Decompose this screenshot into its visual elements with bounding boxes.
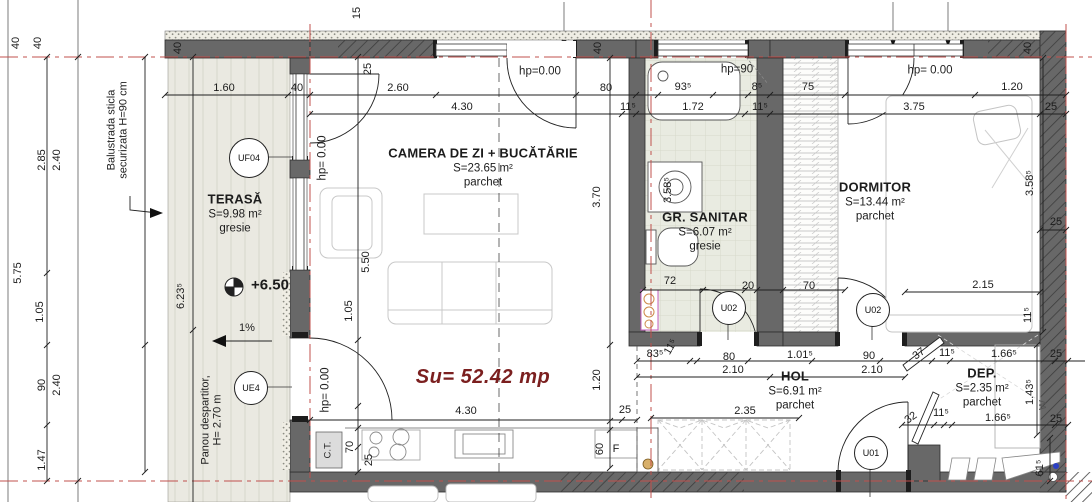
floor-plan-drawing xyxy=(0,0,1092,502)
dep-door-leaves xyxy=(903,337,944,444)
door-opening-top xyxy=(507,41,576,57)
dining-table xyxy=(424,194,518,234)
window-uf04 xyxy=(293,74,307,160)
window-terrace-lower xyxy=(293,178,307,270)
bedroom-furniture xyxy=(886,96,1032,332)
window-arc-terrace xyxy=(310,74,379,143)
wardrobe-hatch xyxy=(783,58,838,332)
floor-plan-canvas: Su= 52.42 mp 4040401540401.60402.608093⁵… xyxy=(0,0,1092,502)
level-marker-icon xyxy=(225,278,243,296)
sofa xyxy=(388,262,552,324)
balustrade-arrow-icon xyxy=(150,208,163,218)
door-arc-top xyxy=(507,58,576,128)
windows xyxy=(293,41,963,270)
hol-wardrobe xyxy=(658,420,790,470)
toilet xyxy=(658,228,698,266)
lower-unit-fixtures xyxy=(368,484,536,502)
kitchen xyxy=(345,428,645,460)
living-furniture xyxy=(320,188,552,324)
pink-fixture xyxy=(641,290,658,330)
door-arc-ue4 xyxy=(310,338,392,420)
blue-dot xyxy=(1053,463,1059,469)
boiler-ct-box xyxy=(316,432,342,468)
insulation-strip xyxy=(165,31,1066,40)
door-arc-entry-u01 xyxy=(838,402,908,472)
